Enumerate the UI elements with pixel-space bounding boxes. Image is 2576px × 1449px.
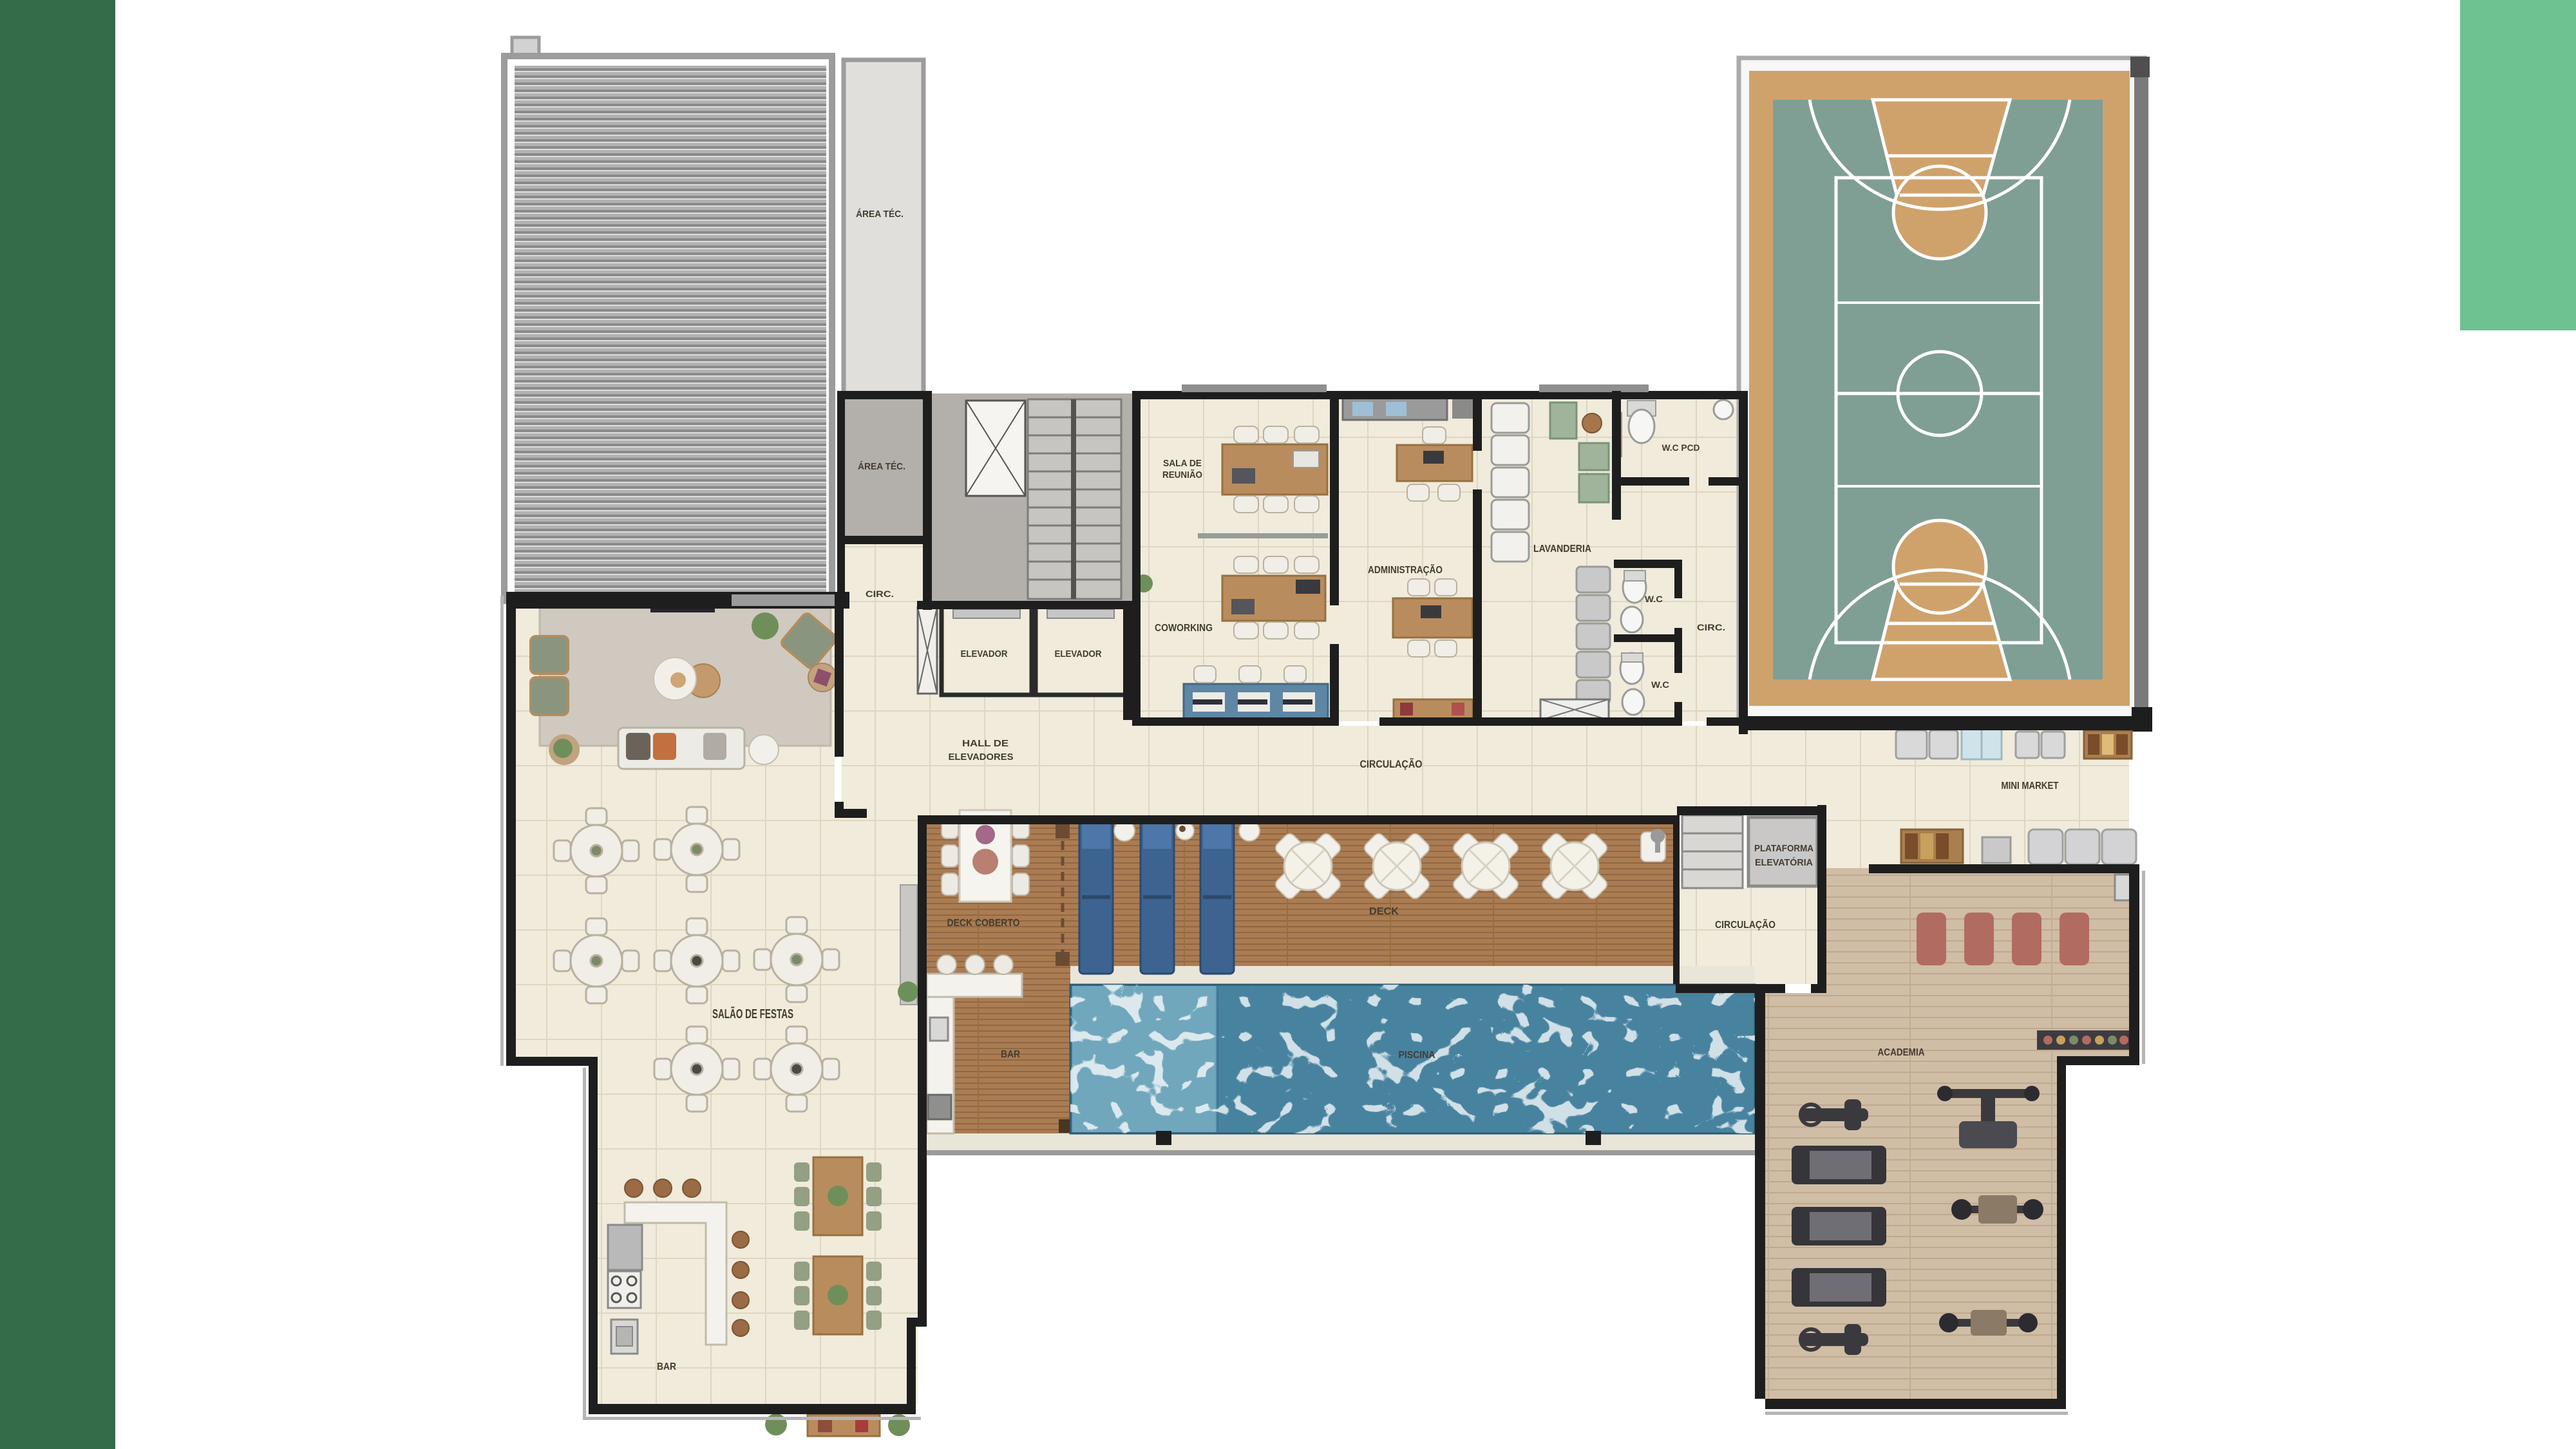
svg-text:PISCINA: PISCINA <box>1399 1050 1435 1061</box>
svg-text:MINI MARKET: MINI MARKET <box>2002 781 2059 791</box>
svg-text:ELEVADOR: ELEVADOR <box>1055 649 1102 659</box>
svg-text:CIRCULAÇÃO: CIRCULAÇÃO <box>1715 918 1776 931</box>
svg-text:CIRC.: CIRC. <box>866 589 894 599</box>
svg-text:ELEVADOR: ELEVADOR <box>961 649 1008 659</box>
svg-text:LAVANDERIA: LAVANDERIA <box>1533 544 1591 554</box>
svg-text:REUNIÃO: REUNIÃO <box>1162 469 1202 480</box>
svg-text:ELEVATÓRIA: ELEVATÓRIA <box>1755 857 1813 868</box>
svg-text:BAR: BAR <box>1001 1049 1020 1060</box>
svg-text:SALA DE: SALA DE <box>1163 458 1202 469</box>
svg-text:BAR: BAR <box>657 1361 676 1372</box>
svg-text:ACADEMIA: ACADEMIA <box>1878 1047 1925 1058</box>
svg-text:DECK COBERTO: DECK COBERTO <box>947 918 1020 929</box>
svg-text:CIRC.: CIRC. <box>1697 622 1725 632</box>
svg-text:CIRCULAÇÃO: CIRCULAÇÃO <box>1360 757 1423 770</box>
svg-text:ELEVADORES: ELEVADORES <box>949 752 1014 762</box>
svg-text:W.C: W.C <box>1645 594 1663 604</box>
svg-text:W.C: W.C <box>1651 679 1669 690</box>
svg-text:SALÃO DE FESTAS: SALÃO DE FESTAS <box>712 1007 793 1021</box>
svg-text:DECK: DECK <box>1369 906 1399 917</box>
svg-text:ÁREA TÉC.: ÁREA TÉC. <box>856 209 904 220</box>
svg-text:PLATAFORMA: PLATAFORMA <box>1754 843 1814 854</box>
svg-text:ADMINISTRAÇÃO: ADMINISTRAÇÃO <box>1368 563 1443 576</box>
svg-text:COWORKING: COWORKING <box>1155 623 1213 634</box>
svg-text:W.C PCD: W.C PCD <box>1662 442 1700 453</box>
svg-text:HALL DE: HALL DE <box>962 738 1009 749</box>
svg-text:ÁREA TÉC.: ÁREA TÉC. <box>858 461 905 472</box>
